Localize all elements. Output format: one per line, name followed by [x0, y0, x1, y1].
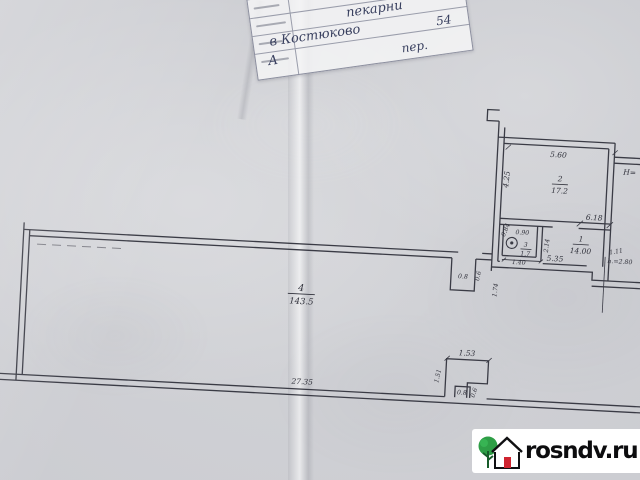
- hall-top-wall-outer: [24, 229, 492, 254]
- closet-number: 3: [524, 242, 528, 249]
- dim-closet-right: 2.14: [543, 238, 552, 254]
- dimension-ticks: [445, 142, 618, 369]
- dim-room2-depth: 4.25: [501, 170, 512, 189]
- fraction-bar: [552, 184, 568, 185]
- room1-area: 14.00: [569, 246, 591, 256]
- dim-closet-bottom: 1.40: [512, 259, 526, 267]
- room2-number: 2: [557, 174, 563, 183]
- hall-left-wall: [16, 222, 30, 380]
- tree-crown-light: [480, 439, 488, 447]
- dim-elevation-mark: Н=: [622, 168, 636, 178]
- dim-closet-left: 1.74: [491, 283, 500, 298]
- floor-plan-drawing: 4 143.5 1 14.00 2 17.2 3 1.7 27.35 5.60 …: [0, 0, 640, 480]
- dim-right-jamb: 1.11: [609, 247, 624, 256]
- watermark-text: rosndv.ru: [525, 438, 637, 464]
- dim-porch-top: 1.53: [458, 348, 475, 358]
- room1-number: 1: [578, 234, 583, 243]
- floor-plan-photo: нае пекарни в Костюково 54 А пер.: [0, 0, 640, 480]
- hall-number: 4: [297, 283, 305, 294]
- dim-notch-width: 0.8: [458, 273, 468, 281]
- house-door: [504, 457, 511, 468]
- hall-bottom-wall-outer: [0, 379, 640, 413]
- room2-area: 17.2: [551, 186, 568, 196]
- dim-porch-side: 1.51: [433, 369, 443, 384]
- dim-ceiling-height: h.=2.80: [607, 258, 632, 266]
- annex-bottom-wall-lower: [592, 286, 640, 289]
- dim-porch-tab-side: 0.6: [470, 387, 480, 399]
- dim-door-span: 6.18: [586, 213, 603, 223]
- annex-bottom-wall-outer: [491, 267, 640, 283]
- dim-closet-top: 0.90: [515, 229, 529, 237]
- closet-area: 1.7: [520, 250, 530, 258]
- dim-notch-side: 0.6: [474, 270, 483, 281]
- construction-dashed-line: [37, 244, 121, 248]
- dim-porch-tab: 0.8: [457, 389, 467, 397]
- stove-symbol: [506, 237, 518, 249]
- hall-area: 143.5: [289, 296, 314, 307]
- fraction-bar: [573, 244, 589, 245]
- dim-hall-width: 27.35: [290, 377, 313, 387]
- hall-bottom-wall-inner: [0, 373, 640, 407]
- stove-center-dot: [510, 241, 513, 244]
- rosndv-watermark: rosndv.ru: [472, 429, 640, 473]
- annex-top-wall: [498, 137, 615, 149]
- wall-to-right-edge: [614, 157, 640, 165]
- dim-room2-width: 5.60: [550, 150, 567, 160]
- fraction-bar: [520, 249, 531, 250]
- dim-room1-width: 5.35: [546, 254, 563, 264]
- annex-corner-hook: [487, 110, 500, 122]
- rosndv-logo: [477, 431, 523, 471]
